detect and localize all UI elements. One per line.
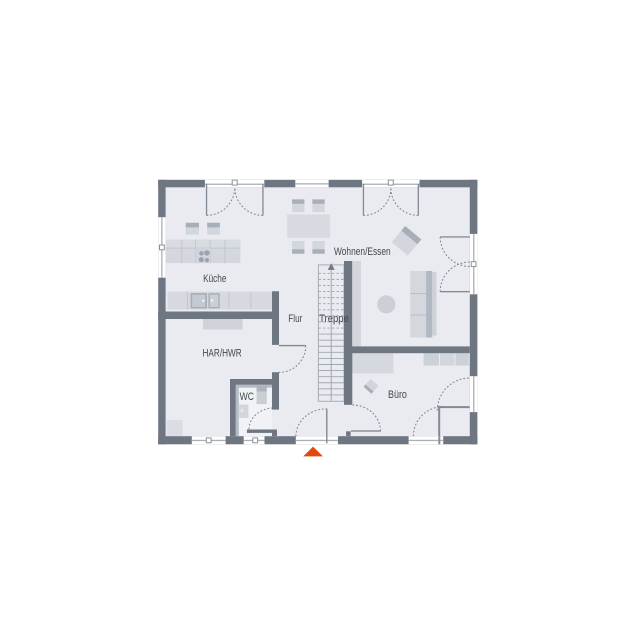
svg-text:Büro: Büro — [388, 389, 407, 401]
svg-text:Treppe: Treppe — [319, 313, 349, 325]
svg-text:Wohnen/Essen: Wohnen/Essen — [334, 246, 391, 258]
svg-text:Küche: Küche — [203, 273, 226, 285]
svg-text:HAR/HWR: HAR/HWR — [203, 347, 242, 359]
svg-text:WC: WC — [240, 391, 255, 403]
svg-text:Flur: Flur — [288, 313, 302, 325]
